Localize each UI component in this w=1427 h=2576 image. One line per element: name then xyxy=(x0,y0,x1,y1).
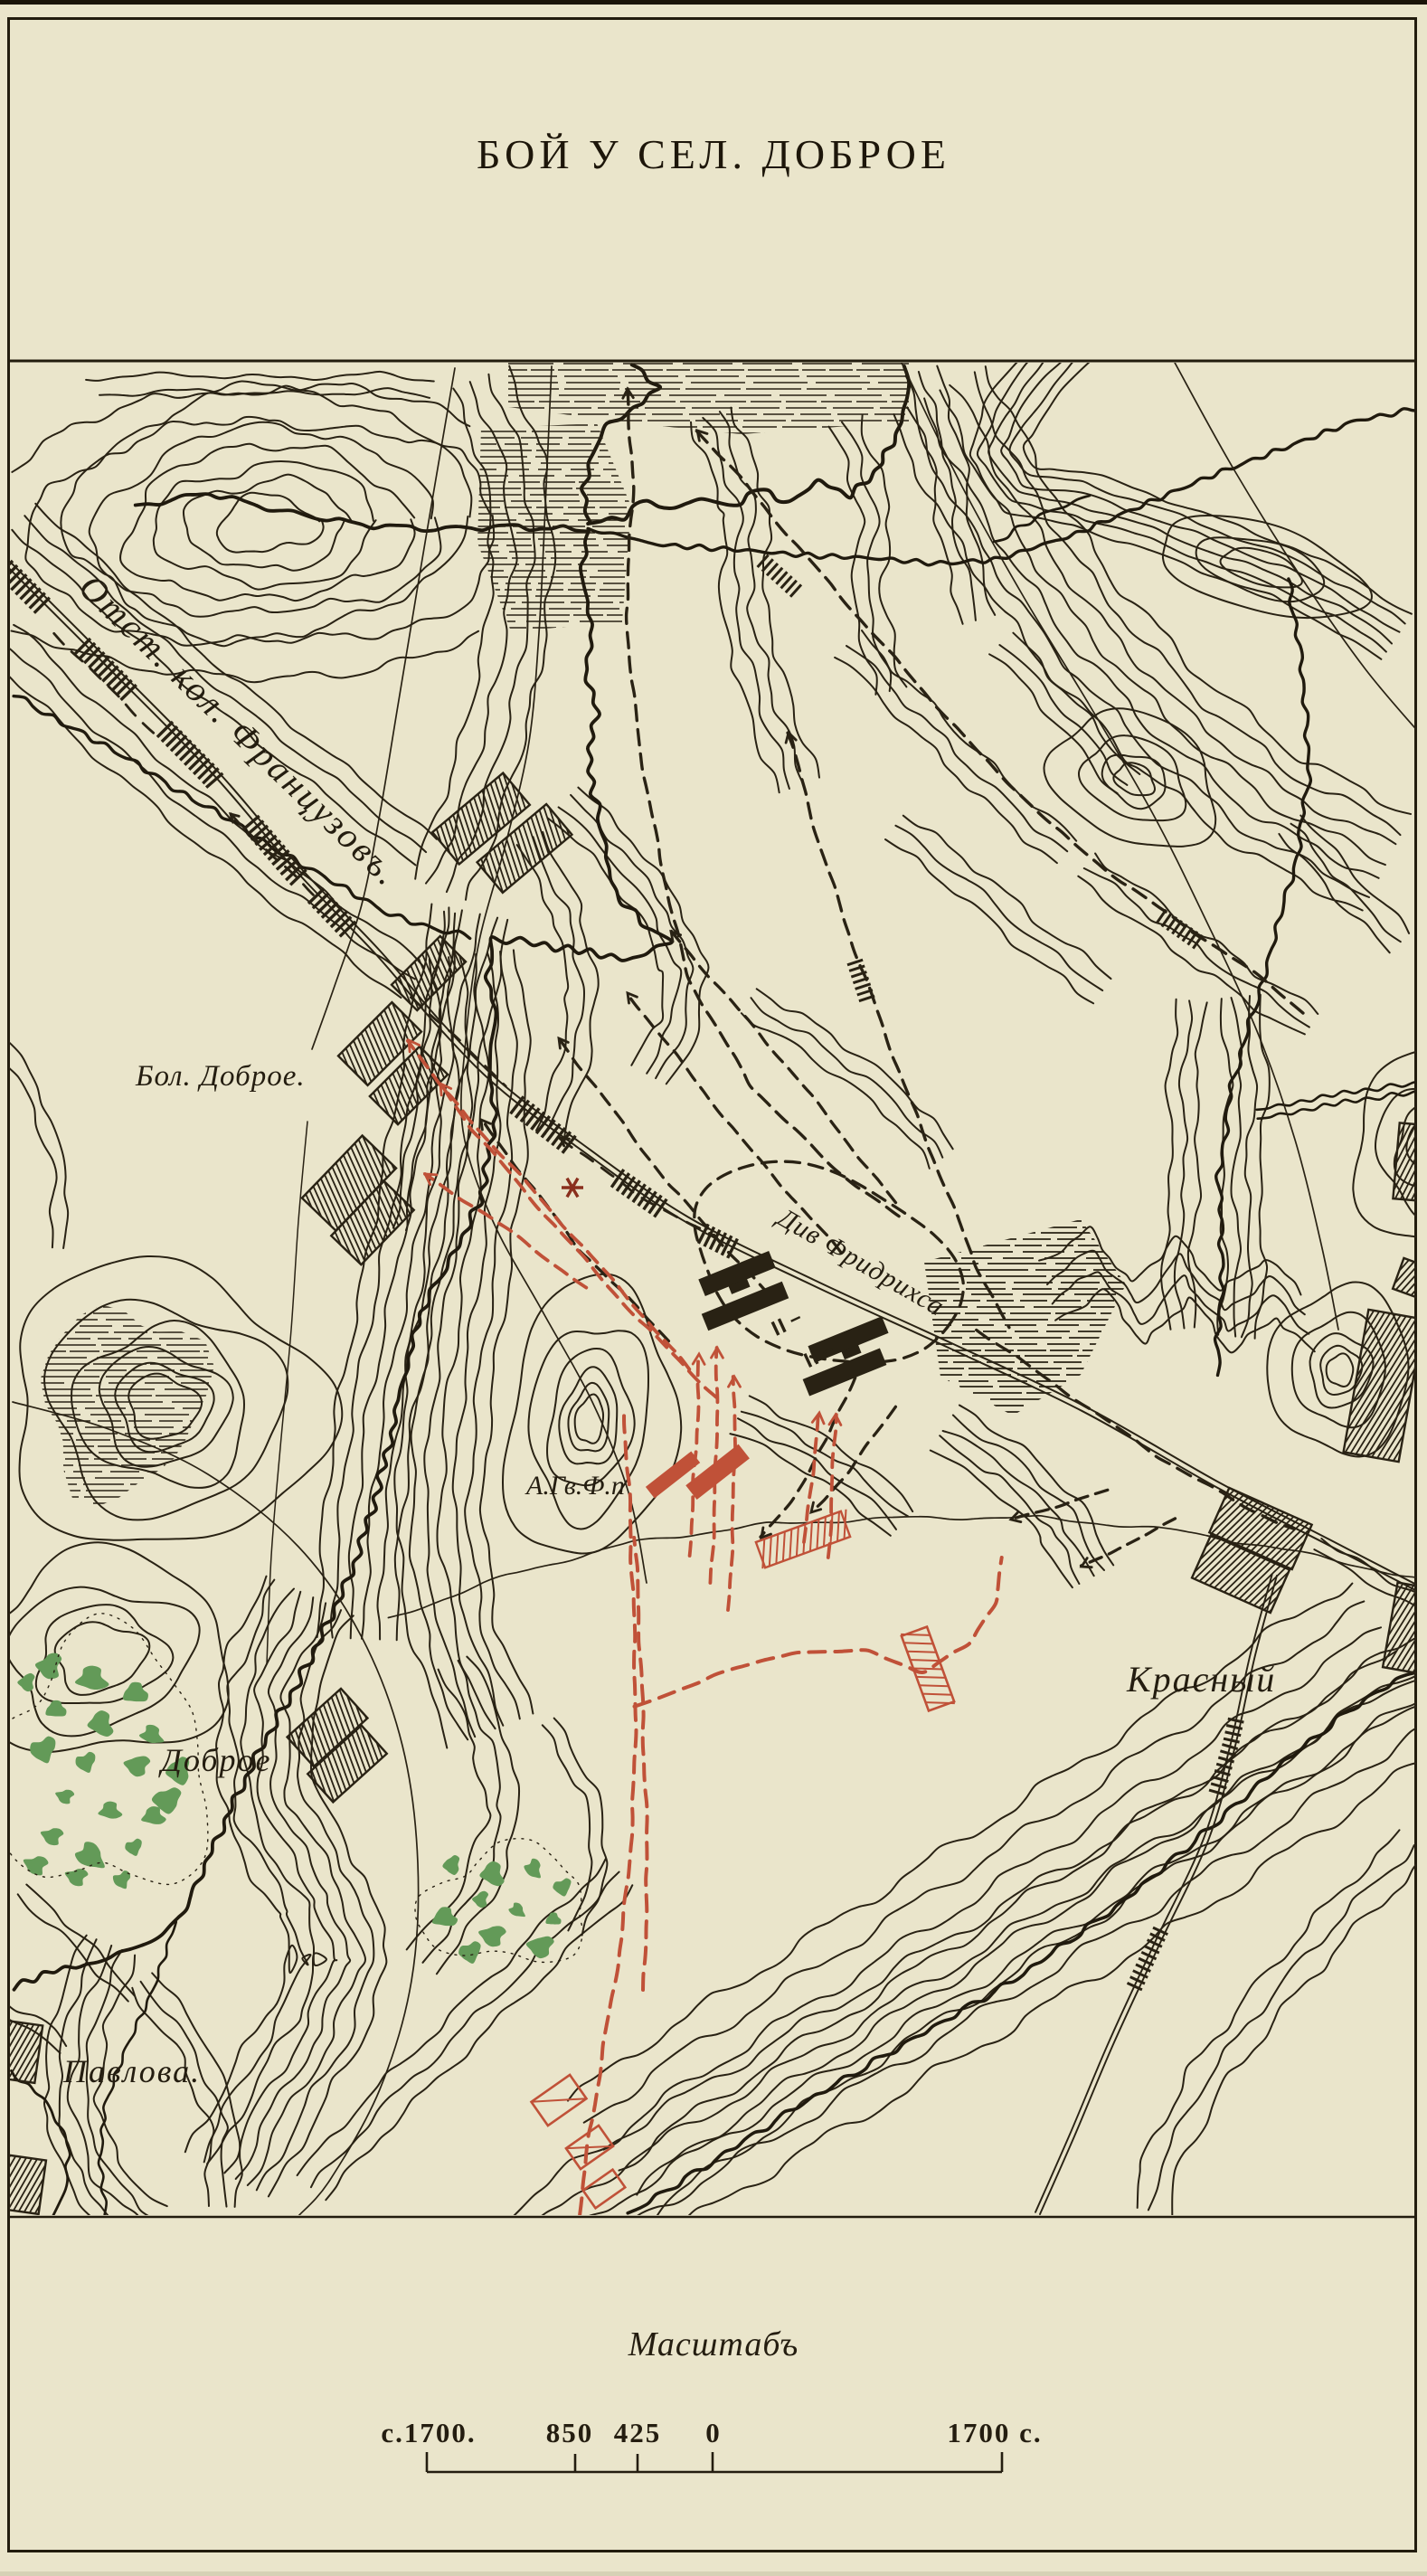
svg-text:Отст. кол. Французовъ.: Отст. кол. Французовъ. xyxy=(71,566,410,895)
svg-text:850: 850 xyxy=(546,2417,594,2448)
svg-text:0: 0 xyxy=(705,2417,720,2448)
svg-text:Бол. Доброе.: Бол. Доброе. xyxy=(135,1060,306,1093)
svg-text:Красный: Красный xyxy=(1126,1659,1276,1700)
svg-text:Доброе: Доброе xyxy=(158,1742,272,1778)
svg-text:А.Гв.Ф.п: А.Гв.Ф.п xyxy=(524,1471,625,1501)
svg-text:Див Фридрихса: Див Фридрихса xyxy=(770,1201,950,1322)
svg-text:Павлова.: Павлова. xyxy=(62,2053,201,2089)
svg-text:Масштабъ: Масштабъ xyxy=(628,2325,799,2363)
svg-text:с.1700.: с.1700. xyxy=(381,2417,476,2448)
svg-text:425: 425 xyxy=(614,2417,662,2448)
svg-text:1700 с.: 1700 с. xyxy=(947,2417,1042,2448)
